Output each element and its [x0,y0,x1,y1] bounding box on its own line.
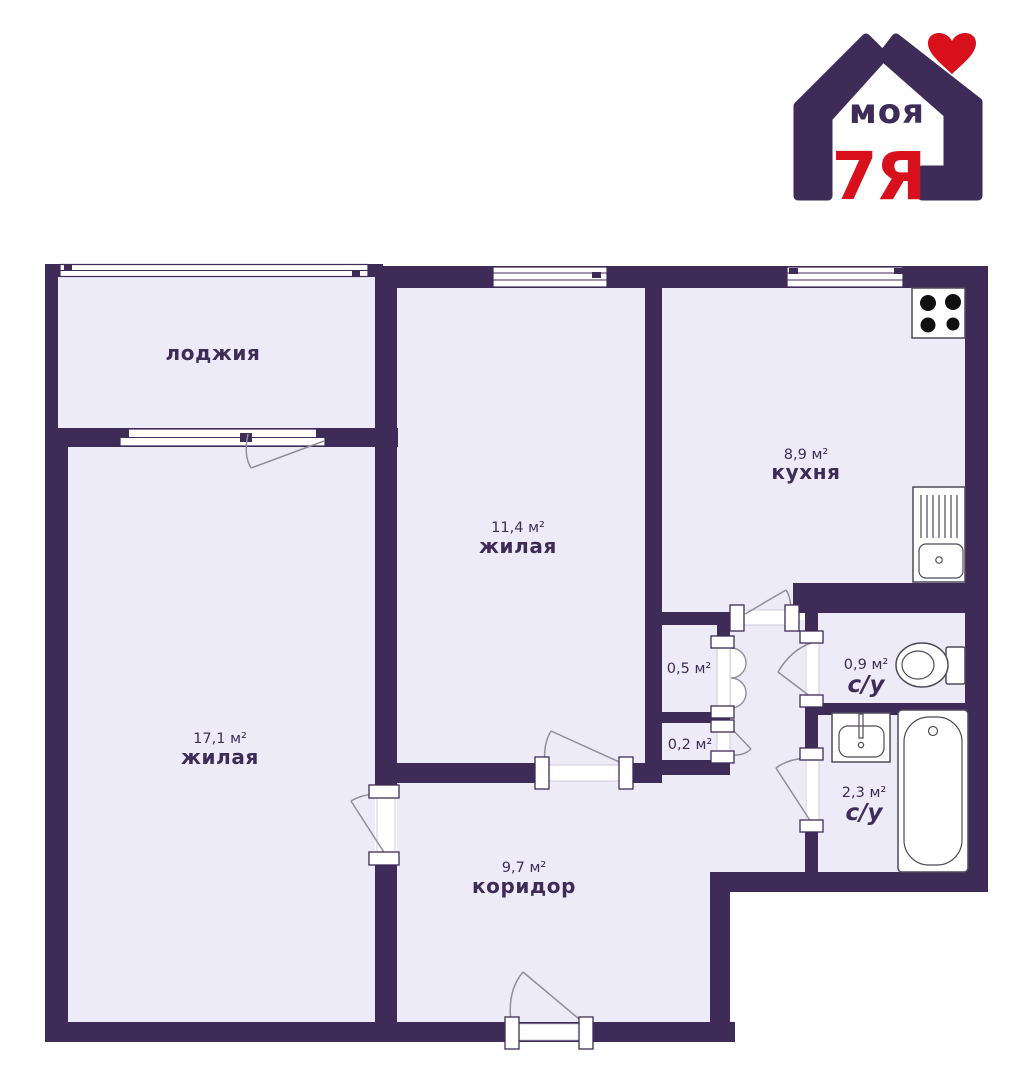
room-name: коридор [472,874,576,898]
floor-plan-svg: лоджия 11,4 м² жилая 8,9 м² кухня 17,1 м… [0,0,1026,1080]
room-area: 0,9 м² [844,657,888,673]
toilet-icon [896,643,965,687]
window-loggia [60,264,368,277]
window-loggia-balcony-unit [120,429,325,446]
logo: моя 7Я [798,33,978,215]
outside-notch [730,892,1026,1080]
room-name: жилая [479,534,557,558]
washbasin-icon [832,713,890,762]
window-kitchen [787,267,903,287]
room-name: кухня [771,460,840,484]
floor-plan-page: лоджия 11,4 м² жилая 8,9 м² кухня 17,1 м… [0,0,1026,1080]
label-closet-05: 0,5 м² [667,661,711,677]
room-area: 0,5 м² [667,661,711,677]
room-name: с/у [845,800,883,826]
window-living1 [493,267,607,287]
logo-word: моя [849,92,925,132]
kitchen-sink-icon [913,487,965,582]
room-area: 0,2 м² [668,737,712,753]
room-name: лоджия [166,341,261,365]
label-bathroom: 2,3 м² с/у [842,785,886,826]
room-name: жилая [181,745,259,769]
room-area: 2,3 м² [842,785,886,801]
bathtub-icon [898,710,968,872]
label-closet-02: 0,2 м² [668,737,712,753]
label-loggia: лоджия [166,341,261,365]
stove-icon [912,288,965,338]
label-wc: 0,9 м² с/у [844,657,888,698]
room-name: с/у [847,672,885,698]
logo-mark: 7Я [832,138,925,215]
